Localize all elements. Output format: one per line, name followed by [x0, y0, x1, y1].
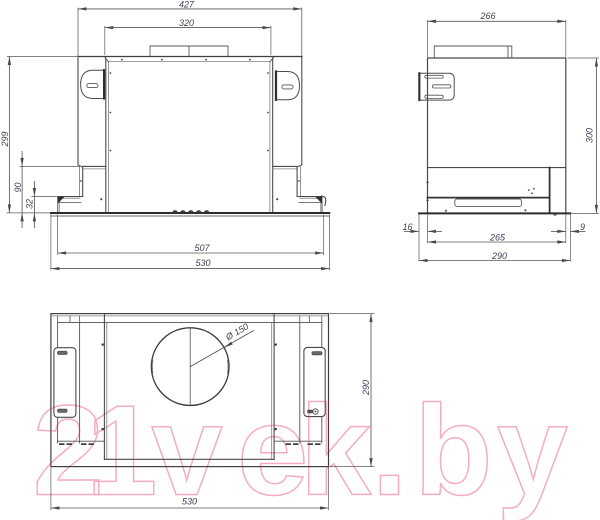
svg-text:21vek.by: 21vek.by	[33, 380, 568, 520]
svg-text:16: 16	[402, 222, 412, 232]
svg-text:427: 427	[179, 0, 195, 9]
svg-text:290: 290	[361, 380, 371, 396]
svg-text:320: 320	[179, 18, 194, 28]
svg-text:507: 507	[194, 243, 210, 253]
svg-text:266: 266	[479, 11, 495, 21]
svg-text:530: 530	[182, 497, 197, 507]
svg-text:32: 32	[25, 199, 35, 209]
svg-text:299: 299	[0, 131, 10, 147]
svg-text:90: 90	[13, 182, 23, 192]
svg-text:300: 300	[585, 128, 595, 143]
svg-text:9: 9	[580, 222, 585, 232]
svg-text:290: 290	[491, 251, 507, 261]
svg-text:530: 530	[195, 258, 210, 268]
svg-text:Ø 150: Ø 150	[223, 321, 250, 342]
svg-text:265: 265	[489, 232, 506, 242]
